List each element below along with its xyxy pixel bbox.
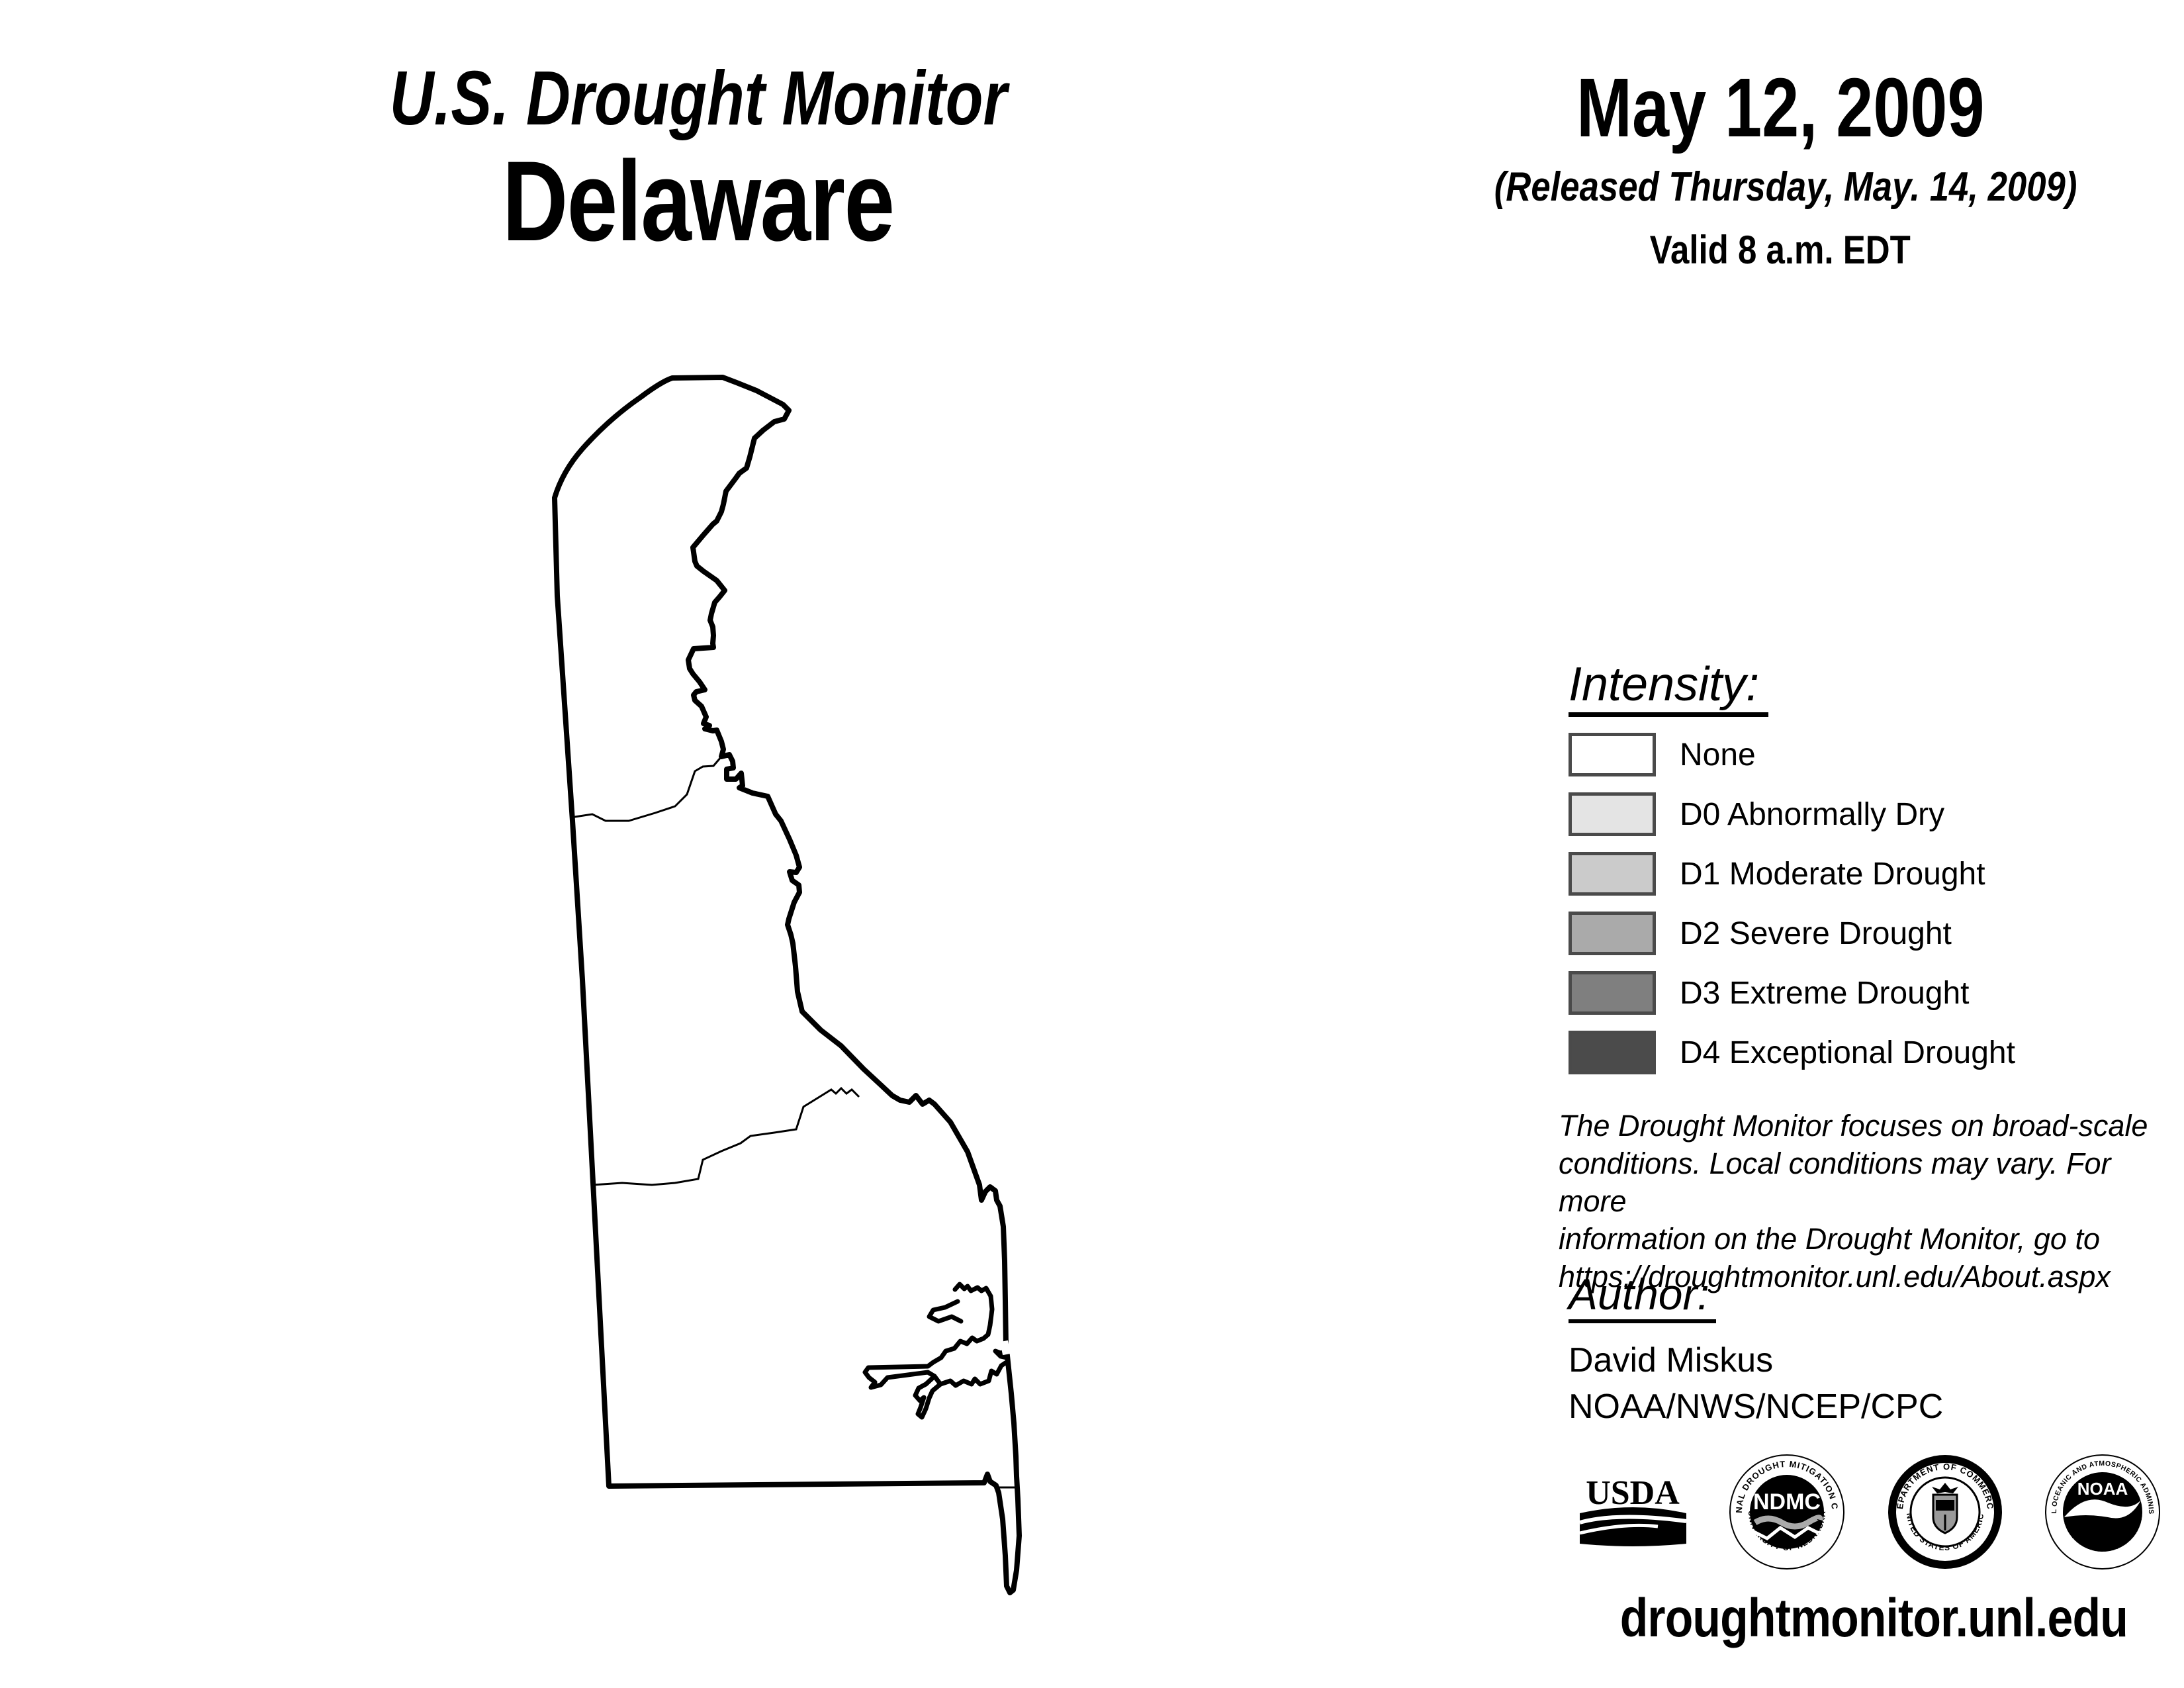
page-subtitle-text: Delaware: [502, 144, 893, 258]
disclaimer-text: The Drought Monitor focuses on broad-sca…: [1559, 1107, 2167, 1295]
indian-river-inlet-gap: [1004, 1341, 1007, 1354]
noaa-logo: NATIONAL OCEANIC AND ATMOSPHERIC ADMINIS…: [2044, 1454, 2161, 1570]
valid-time-text: Valid 8 a.m. EDT: [1650, 230, 1911, 270]
legend-swatch-d4: [1569, 1031, 1656, 1074]
legend-rows: None D0 Abnormally Dry D1 Moderate Droug…: [1569, 733, 2138, 1074]
legend-label-d0: D0 Abnormally Dry: [1680, 796, 1944, 833]
legend-row-d0: D0 Abnormally Dry: [1569, 792, 2138, 836]
report-date: May 12, 2009: [1443, 66, 2118, 150]
legend-label-d1: D1 Moderate Drought: [1680, 856, 1985, 892]
disclaimer-line-1: The Drought Monitor focuses on broad-sca…: [1559, 1107, 2167, 1145]
legend-swatch-d1: [1569, 852, 1656, 896]
logo-row: USDA NATIONAL DROUGHT MITIGATION CENTER …: [1578, 1454, 2161, 1570]
report-title-block: U.S. Drought Monitor Delaware: [251, 58, 1145, 258]
report-date-text: May 12, 2009: [1576, 66, 1984, 150]
legend-label-none: None: [1680, 737, 1756, 773]
release-date: (Released Thursday, May. 14, 2009): [1443, 167, 2118, 208]
author-agency: NOAA/NWS/NCEP/CPC: [1569, 1389, 1943, 1424]
page-title: U.S. Drought Monitor: [251, 58, 1145, 139]
date-block: May 12, 2009 (Released Thursday, May. 14…: [1443, 66, 2118, 270]
release-date-text: (Released Thursday, May. 14, 2009): [1494, 167, 2077, 208]
author-heading: Author:: [1569, 1272, 1716, 1323]
legend-swatch-d2: [1569, 912, 1656, 955]
disclaimer-line-2: conditions. Local conditions may vary. F…: [1559, 1145, 2167, 1220]
disclaimer-line-3: information on the Drought Monitor, go t…: [1559, 1220, 2167, 1258]
author-block: Author: David Miskus NOAA/NWS/NCEP/CPC: [1569, 1272, 1943, 1424]
legend-heading: Intensity:: [1569, 661, 1768, 717]
page-subtitle-state: Delaware: [251, 144, 1145, 258]
ndmc-logo-text: NDMC: [1753, 1489, 1821, 1515]
legend-row-d3: D3 Extreme Drought: [1569, 971, 2138, 1015]
ndmc-logo: NATIONAL DROUGHT MITIGATION CENTER UNIVE…: [1729, 1454, 1845, 1570]
footer-url: droughtmonitor.unl.edu: [1575, 1587, 2138, 1650]
intensity-legend: Intensity: None D0 Abnormally Dry D1 Mod…: [1569, 661, 2138, 1090]
footer-url-text: droughtmonitor.unl.edu: [1620, 1587, 2128, 1650]
commerce-seal-logo: DEPARTMENT OF COMMERCE UNITED STATES OF …: [1887, 1454, 2003, 1570]
doc-shield-ship: [1936, 1500, 1954, 1511]
delaware-state-outline: [555, 377, 1019, 1593]
valid-time: Valid 8 a.m. EDT: [1443, 230, 2118, 270]
page-title-text: U.S. Drought Monitor: [389, 58, 1007, 139]
legend-label-d3: D3 Extreme Drought: [1680, 975, 1970, 1011]
author-name: David Miskus: [1569, 1343, 1943, 1378]
legend-swatch-none: [1569, 733, 1656, 776]
legend-label-d4: D4 Exceptional Drought: [1680, 1035, 2015, 1071]
legend-row-d4: D4 Exceptional Drought: [1569, 1031, 2138, 1074]
legend-swatch-d3: [1569, 971, 1656, 1015]
usda-logo: USDA: [1578, 1475, 1688, 1549]
legend-row-d2: D2 Severe Drought: [1569, 912, 2138, 955]
noaa-logo-text: NOAA: [2077, 1479, 2128, 1499]
legend-swatch-d0: [1569, 792, 1656, 836]
legend-label-d2: D2 Severe Drought: [1680, 915, 1952, 952]
drought-monitor-page: { "header": { "title_line1": "U.S. Droug…: [0, 0, 2184, 1688]
legend-row-none: None: [1569, 733, 2138, 776]
legend-row-d1: D1 Moderate Drought: [1569, 852, 2138, 896]
usda-logo-text: USDA: [1586, 1475, 1680, 1512]
